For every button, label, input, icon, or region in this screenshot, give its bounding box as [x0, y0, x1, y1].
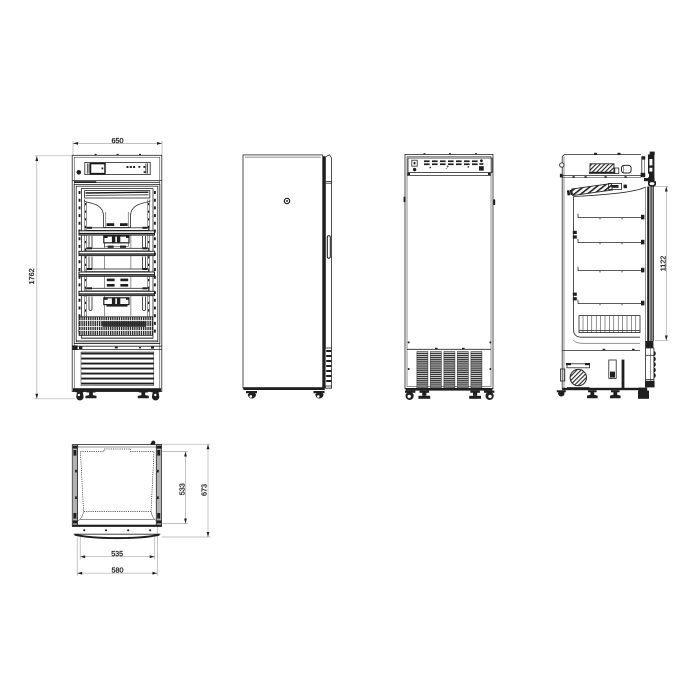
svg-text:650: 650	[112, 136, 124, 145]
svg-text:533: 533	[177, 483, 186, 495]
svg-text:1122: 1122	[659, 256, 668, 271]
svg-text:1762: 1762	[27, 268, 36, 284]
svg-text:673: 673	[199, 484, 208, 496]
svg-text:535: 535	[111, 549, 123, 558]
svg-text:580: 580	[112, 565, 124, 574]
